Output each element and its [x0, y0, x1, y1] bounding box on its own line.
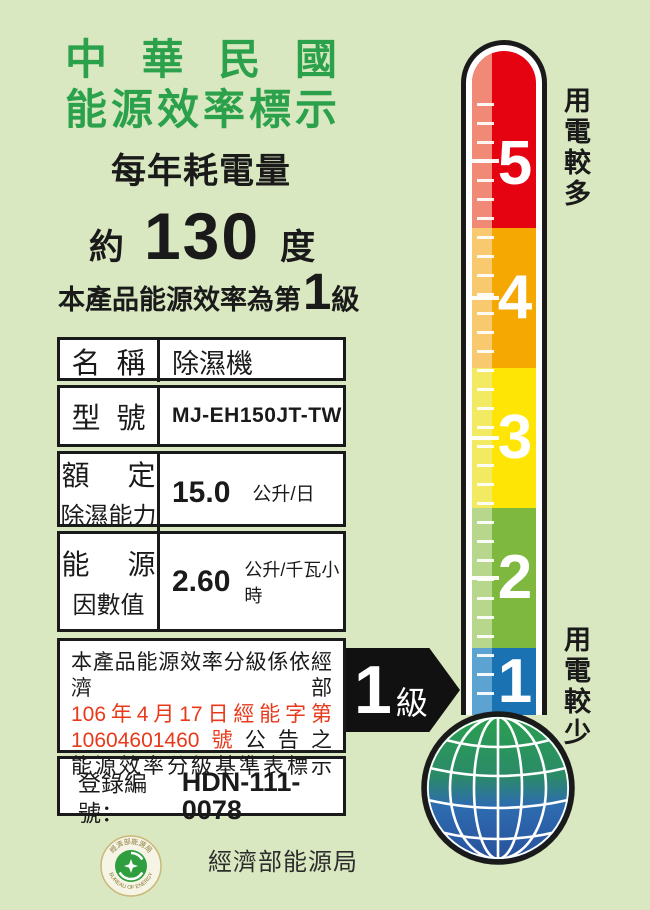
- announcement-line1: 本產品能源效率分級係依經濟部: [71, 650, 332, 702]
- table-row-name: 名稱 除濕機: [57, 337, 346, 381]
- name-value: 除濕機: [172, 342, 253, 381]
- label-title-line1: 中華民國: [65, 36, 337, 84]
- annual-consumption-heading: 每年耗電量: [65, 143, 337, 194]
- model-label: 型號: [72, 395, 146, 437]
- model-value: MJ-EH150JT-TW: [172, 404, 342, 428]
- energy-factor-label-line2: 因數值: [73, 585, 145, 620]
- table-row-model: 型號 MJ-EH150JT-TW: [57, 385, 346, 447]
- name-label: 名稱: [72, 340, 146, 382]
- efficiency-grade-line: 本產品能源效率為第 1 級: [58, 262, 350, 320]
- announcement-box: 本產品能源效率分級係依經濟部 106年4月17日經能字第 10604601460…: [57, 638, 346, 753]
- capacity-value: 15.0: [172, 476, 230, 510]
- registration-label: 登錄編號：: [78, 768, 182, 828]
- energy-efficiency-label: 中華民國 能源效率標示 每年耗電量 約 130 度 本產品能源效率為第 1 級 …: [0, 0, 650, 910]
- capacity-label-line2: 除濕能力: [61, 496, 157, 531]
- energy-factor-label-line1: 能源: [62, 543, 156, 583]
- arrow-grade-unit: 級: [396, 678, 428, 724]
- thermo-segment-number: 4: [498, 267, 532, 329]
- globe-icon: [420, 708, 576, 868]
- grade-prefix-text: 本產品能源效率為第: [58, 278, 301, 317]
- capacity-label-line1: 額定: [62, 454, 156, 494]
- bureau-of-energy-logo: 經濟部能源局 BUREAU OF ENERGY: [99, 834, 163, 898]
- uses-less-power-label: 用電較少: [556, 625, 595, 749]
- announcement-line3-red: 10604601460號: [71, 729, 245, 752]
- arrow-grade-value: 1: [354, 656, 392, 724]
- capacity-unit: 公升/日: [252, 479, 314, 506]
- thermo-segment-number: 1: [498, 651, 532, 713]
- uses-more-power-label: 用電較多: [556, 86, 595, 210]
- registration-number: HDN-111-0078: [182, 768, 343, 824]
- grade-value: 1: [303, 262, 331, 321]
- thermometer-ticks: [477, 103, 494, 709]
- spec-table: 名稱 除濕機 型號 MJ-EH150JT-TW 額定 除濕能力 15.0 公升/…: [57, 337, 346, 816]
- grade-suffix-text: 級: [331, 278, 359, 318]
- energy-factor-unit: 公升/千瓦小時: [244, 556, 343, 608]
- label-title-line2: 能源效率標示: [65, 86, 337, 134]
- table-row-energy-factor: 能源 因數值 2.60 公升/千瓦小時: [57, 531, 346, 632]
- thermo-segment-number: 3: [498, 407, 532, 469]
- announcement-line3-black: 公告之: [245, 729, 332, 752]
- agency-name-text: 經濟部能源局: [208, 842, 358, 877]
- annual-consumption-value-row: 約 130 度: [57, 198, 347, 268]
- thermometer-tube: 54321: [461, 40, 547, 715]
- table-row-capacity: 額定 除濕能力 15.0 公升/日: [57, 451, 346, 527]
- announcement-line3: 10604601460號公告之: [71, 728, 332, 754]
- thermo-segment-number: 5: [498, 133, 532, 195]
- announcement-line2: 106年4月17日經能字第: [71, 702, 332, 728]
- thermo-segment-number: 2: [498, 547, 532, 609]
- energy-factor-value: 2.60: [172, 565, 230, 599]
